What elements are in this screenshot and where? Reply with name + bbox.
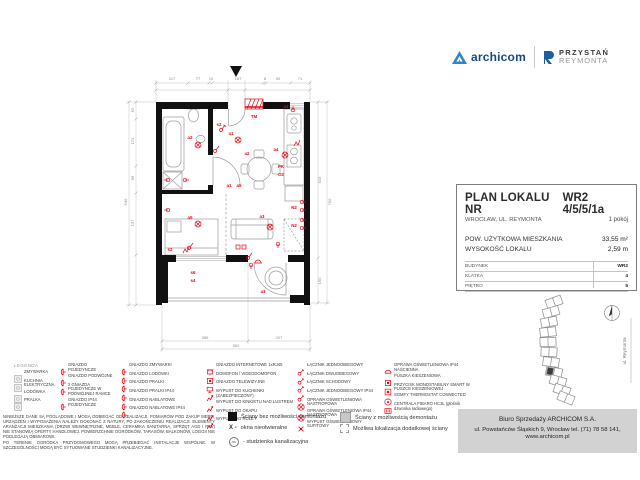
plan-annotation: N2 <box>291 223 297 228</box>
legend-item: 2 GNIAZDA POJEDYNCZE W PODWÓJNEJ RAMCE <box>58 383 115 397</box>
legend-column: LEGENDAZMYWARKAKUCHNIA ELEKTRYCZNALODÓWK… <box>14 363 56 407</box>
legend-item-label: DOMOFON / VIDEODOMOFON <box>216 372 276 377</box>
legend-item-label: SOMFY THERMOSTAT CONNECTED <box>394 393 466 398</box>
unit-info-panel: PLAN LOKALU NR WR2 4/5/5/1a WROCŁAW, UL.… <box>456 184 637 291</box>
legend-item: GNIAZDO TELEWIZYJNE <box>206 380 293 387</box>
plan-annotation: s4 <box>191 278 196 283</box>
plan-annotation: PK <box>278 164 285 169</box>
plan-annotation: a3 <box>284 104 289 109</box>
legend-item: GNIAZDO NABLATOWE IP44 <box>119 406 202 413</box>
sales-office-url: www.archicom.pl <box>458 434 637 441</box>
dimension-label: 8 <box>264 76 267 81</box>
box-icon <box>206 372 214 379</box>
table-row: BUDYNEKWR2 <box>465 261 628 272</box>
dimension-label: 62 <box>130 107 135 112</box>
sq-icon <box>14 390 22 397</box>
legend-item-label: KUCHNIA ELEKTRYCZNA <box>24 379 56 388</box>
legend-column: OPRAWA OŚWIETLENIOWA IP44 NAŚCIENNAPUSZK… <box>384 363 472 413</box>
przystan-mark-icon <box>543 50 555 64</box>
legend-item: ŁĄCZNIK JEDNOOBIEGOWY IP44 <box>297 389 379 396</box>
socket-icon <box>119 363 127 370</box>
sq-icon <box>14 398 22 405</box>
archicom-logo: archicom <box>452 50 526 64</box>
dimension-label: 187 <box>235 76 242 81</box>
disclaimer-paragraph: PO TERENIE OGRÓDKA PRZYDOMOWEGO MOGĄ PRZ… <box>3 440 215 450</box>
table-row: KLATKA4 <box>465 272 628 282</box>
dimension-label: 150 <box>317 277 322 284</box>
dimension-label: 117 <box>169 76 176 81</box>
legend-item-label: GNIAZDO NABLATOWE <box>129 398 175 403</box>
legend-item: OPRAWA OŚWIETLENIOWA NASTROPOWA <box>297 398 379 407</box>
socket-icon <box>58 383 66 390</box>
disclaimer-paragraph: NINIEJSZE DANE SĄ POGLĄDOWE I MOGĄ ODBIE… <box>3 414 215 439</box>
legend-title: LEGENDA <box>14 363 56 368</box>
socket-icon <box>119 406 127 413</box>
legend-item-label: GNIAZDO POJEDYNCZE <box>68 363 115 372</box>
plan-annotation: a2 <box>245 151 250 156</box>
area-value: 33,55 m² <box>602 236 628 243</box>
plan-annotation: O2 <box>278 172 284 177</box>
legend-item: GNIAZDO IP44 POJEDYNCZE <box>58 398 115 407</box>
plan-annotation: TM <box>251 114 258 119</box>
walls-layer <box>156 66 310 305</box>
legend-item-label: GNIAZDO PODWÓJNE <box>68 374 112 379</box>
switch-icon <box>297 372 305 379</box>
lamp-icon <box>297 398 305 405</box>
legend-item: ŁĄCZNIK SCHODOWY <box>297 380 379 387</box>
x-mark: X - <box>229 425 237 431</box>
dimension-label: 355 <box>202 335 209 340</box>
legend-item-label: GNIAZDO PRALKI IP44 <box>129 389 174 394</box>
arrow-icon <box>206 389 214 396</box>
unit-table: BUDYNEKWR2 KLATKA4 PIĘTRO5 <box>465 261 628 292</box>
archicom-triangle-icon <box>452 51 467 64</box>
dimension-label: 77 <box>196 76 201 81</box>
table-divider <box>593 261 594 288</box>
plan-annotation: a2 <box>188 135 193 140</box>
sales-office-box: Biuro Sprzedaży ARCHICOM S.A. ul. Powsta… <box>458 409 637 453</box>
legend-item: KUCHNIA ELEKTRYCZNA <box>14 379 56 388</box>
legend-item: ZMYWARKA <box>14 370 56 377</box>
legend-item: GNIAZDO PRALKI IP44 <box>119 389 202 396</box>
legend-item: GNIAZDO PRALKI <box>119 380 202 387</box>
north-arrow-icon <box>605 306 620 321</box>
plan-annotation: a4 <box>274 147 279 152</box>
legend-item-label: GNIAZDO TELEWIZYJNE <box>216 380 265 385</box>
legend-item-label: ŁĄCZNIK SCHODOWY <box>307 380 351 385</box>
legend-item-label: GNIAZDO INTERNETOWE 1xRJ45 <box>216 363 282 368</box>
legend-item-label: GNIAZDO IP44 POJEDYNCZE <box>68 398 115 407</box>
highlighted-unit <box>546 367 553 375</box>
legend-item-label: 2 GNIAZDA POJEDYNCZE W PODWÓJNEJ RAMCE <box>68 383 115 397</box>
socket-icon <box>58 374 66 381</box>
tv-icon <box>206 380 214 387</box>
dimension-label: 99 <box>130 175 135 180</box>
sales-office-name: Biuro Sprzedaży ARCHICOM S.A. <box>458 416 637 423</box>
unit-number: WR2 4/5/5/1a <box>563 192 628 216</box>
sq-icon <box>14 379 22 386</box>
legend-item-label: ŁĄCZNIK JEDNOOBIEGOWY <box>307 363 363 368</box>
legend-item-label: PUSZKA KIESZENIOWA <box>394 374 441 379</box>
legend-item: GNIAZDO ZMYWARKI <box>119 363 202 370</box>
legend-item-label: PRALKA <box>24 398 41 403</box>
plan-annotation: a3 <box>261 289 266 294</box>
legend-item: OPRAWA OŚWIETLENIOWA IP44 NAŚCIENNA <box>384 363 472 372</box>
wall-gray-swatch <box>340 412 351 423</box>
legend-optional-wall: Możliwa lokalizacja dodatkowej ściany <box>340 424 448 433</box>
legend-item-label: LODÓWKA <box>24 390 45 395</box>
legend-item: WYPUST DO KINKIETU NAD LUSTREM <box>206 400 293 407</box>
legend-item: PUSZKA KIESZENIOWA <box>384 374 472 381</box>
table-row: PIĘTRO5 <box>465 282 628 292</box>
socket-icon <box>119 372 127 379</box>
panel-title: PLAN LOKALU NR <box>465 192 563 216</box>
box-icon <box>384 374 392 381</box>
legend-item-label: GNIAZDO ZMYWARKI <box>129 363 172 368</box>
legend-item-label: GNIAZDO LODÓWKI <box>129 372 169 377</box>
street-label: ul. Reymonta <box>622 337 627 365</box>
legend-column: GNIAZDO POJEDYNCZEGNIAZDO PODWÓJNE2 GNIA… <box>58 363 115 409</box>
legend-item-label: PRZYCISK MONOSTABILNY SMART W PUSZCE KIE… <box>394 383 472 392</box>
legend-item: ŁĄCZNIK DWUOBIEGOWY <box>297 372 379 379</box>
legend-item: PRALKA <box>14 398 56 405</box>
legend-item: GNIAZDO INTERNETOWE 1xRJ45 <box>206 363 293 370</box>
plan-annotation: s2 <box>217 122 222 127</box>
dimension-label: 71 <box>298 76 303 81</box>
socket-icon <box>58 363 66 370</box>
area-label: POW. UŻYTKOWA MIESZKANIA <box>465 236 563 243</box>
legend-item: GNIAZDO PODWÓJNE <box>58 374 115 381</box>
sq-icon <box>14 370 22 377</box>
dimension-label: 750 <box>327 198 332 205</box>
legend-item-label: OPRAWA OŚWIETLENIOWA NASTROPOWA <box>307 398 379 407</box>
floor-plan-sheet: archicom PRZYSTAŃ REYMONTA <box>0 0 640 480</box>
project-name-line2: REYMONTA <box>559 57 609 65</box>
furniture-layer <box>163 104 307 301</box>
socket-icon <box>119 398 127 405</box>
manhole-icon: ss <box>229 437 239 447</box>
plan-annotation: a3 <box>260 214 265 219</box>
dimension-label: 137 <box>130 219 135 226</box>
net-icon <box>206 363 214 370</box>
building-outline <box>540 295 576 405</box>
site-map: ul. Reymonta <box>520 293 640 415</box>
plan-annotation: a5 <box>188 215 193 220</box>
legend-walls-removable: Ściany z możliwością demontażu <box>340 412 437 423</box>
dimension-label: 540 <box>123 198 128 205</box>
legend-item-label: WYPUST DO KINKIETU NAD LUSTREM <box>216 400 293 405</box>
legend-item-label: WYPUST DO KUCHENKI (ZABEZPIECZONY) <box>216 389 293 398</box>
height-value: 2,59 m <box>608 246 628 253</box>
dimension-label: 562 <box>233 343 240 348</box>
legend-item: ŁĄCZNIK JEDNOOBIEGOWY <box>297 363 379 370</box>
plan-annotation: a1 <box>229 131 234 136</box>
legend-manhole: ss - studzienka kanalizacyjna <box>229 437 308 447</box>
legend-item: PRZYCISK MONOSTABILNY SMART W PUSZCE KIE… <box>384 383 472 392</box>
socket-icon <box>119 389 127 396</box>
dimension-label: 519 <box>317 176 322 183</box>
dimension-label: 10 <box>209 76 214 81</box>
socket-icon <box>119 380 127 387</box>
therm-icon <box>384 393 392 400</box>
wall-dashed-swatch <box>340 424 349 433</box>
btn-icon <box>384 383 392 390</box>
dimension-label: 90 <box>276 76 281 81</box>
switch-icon <box>297 363 305 370</box>
legend-item-label: ZMYWARKA <box>24 370 48 375</box>
socket-icon <box>58 398 66 405</box>
disclaimer: NINIEJSZE DANE SĄ POGLĄDOWE I MOGĄ ODBIE… <box>3 414 215 450</box>
wall-black-swatch <box>228 412 237 421</box>
plan-annotation: s2 <box>168 247 173 252</box>
sales-office-address: ul. Powstańców Śląskich 9, Wrocław tel. … <box>458 427 637 434</box>
legend-item: GNIAZDO POJEDYNCZE <box>58 363 115 372</box>
legend-item-label: GNIAZDO PRALKI <box>129 380 164 385</box>
legend-item-label: OPRAWA OŚWIETLENIOWA IP44 NAŚCIENNA <box>394 363 472 372</box>
switch-icon <box>297 389 305 396</box>
legend-item-label: ŁĄCZNIK DWUOBIEGOWY <box>307 372 359 377</box>
legend-item: GNIAZDO NABLATOWE <box>119 398 202 405</box>
legend-walls-fixed: Ściany bez możliwości demontażu <box>228 412 326 421</box>
floor-plan-drawing: TMs2a2a1a3a4PKO2N2N2a2a1a5a5a3s2s6s4a311… <box>88 52 348 362</box>
unit-rooms: 1 pokój <box>609 217 628 223</box>
archicom-wordmark: archicom <box>471 50 526 64</box>
brand-header: archicom PRZYSTAŃ REYMONTA <box>452 44 638 70</box>
legend-column: GNIAZDO ZMYWARKIGNIAZDO LODÓWKIGNIAZDO P… <box>119 363 202 415</box>
legend-item: SOMFY THERMOSTAT CONNECTED <box>384 393 472 400</box>
logo-divider <box>534 46 535 68</box>
hub-icon <box>384 402 392 409</box>
legend-item-label: ŁĄCZNIK JEDNOOBIEGOWY IP44 <box>307 389 373 394</box>
legend-item: GNIAZDO LODÓWKI <box>119 372 202 379</box>
legend-windows-fixed: X - okna nieotwieralne <box>229 425 287 431</box>
legend-item-label: GNIAZDO NABLATOWE IP44 <box>129 406 185 411</box>
dimension-label: 207 <box>276 335 283 340</box>
plan-annotation: a1 <box>227 183 232 188</box>
legend-item: DOMOFON / VIDEODOMOFON <box>206 372 293 379</box>
legend-item: WYPUST DO KUCHENKI (ZABEZPIECZONY) <box>206 389 293 398</box>
legend-item: LODÓWKA <box>14 390 56 397</box>
plan-annotation: N2 <box>291 205 297 210</box>
arrow-icon <box>206 400 214 407</box>
height-label: WYSOKOŚĆ LOKALU <box>465 246 532 253</box>
dimension-label: 171 <box>130 137 135 144</box>
switch-icon <box>297 380 305 387</box>
plan-annotation: a5 <box>237 183 242 188</box>
unit-address: WROCŁAW, UL. REYMONTA <box>465 217 542 223</box>
plan-annotation: s6 <box>191 270 196 275</box>
wall-icon <box>384 363 392 370</box>
przystan-reymonta-logo: PRZYSTAŃ REYMONTA <box>543 49 609 65</box>
